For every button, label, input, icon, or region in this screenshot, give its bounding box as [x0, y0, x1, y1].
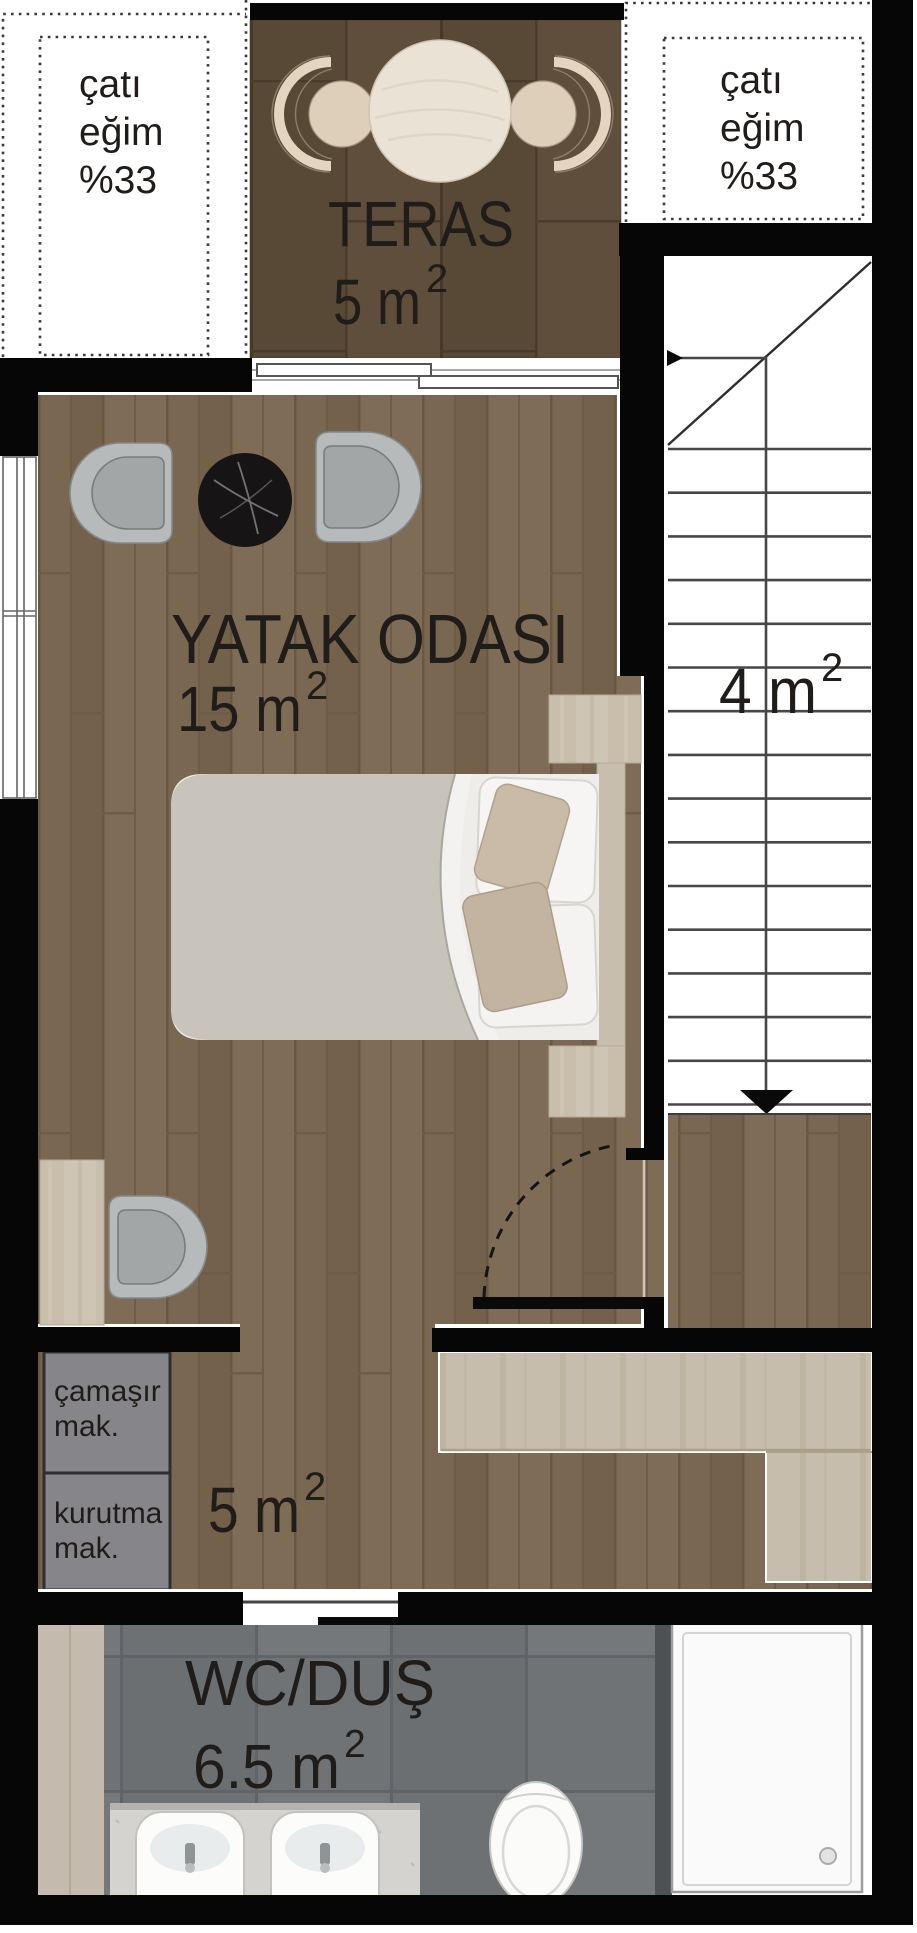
svg-text:15 m: 15 m: [177, 673, 302, 745]
svg-text:5 m: 5 m: [333, 266, 421, 338]
svg-text:çatı: çatı: [720, 59, 783, 102]
svg-text:eğim: eğim: [79, 111, 164, 154]
svg-text:kurutma: kurutma: [54, 1497, 163, 1530]
svg-text:%33: %33: [79, 159, 157, 202]
svg-text:mak.: mak.: [54, 1410, 119, 1443]
svg-text:YATAK ODASI: YATAK ODASI: [171, 600, 569, 678]
svg-text:5 m: 5 m: [208, 1474, 300, 1546]
svg-text:2: 2: [304, 1465, 326, 1509]
svg-text:2: 2: [821, 646, 843, 690]
svg-text:eğim: eğim: [720, 107, 805, 150]
svg-text:6.5 m: 6.5 m: [193, 1733, 340, 1802]
svg-text:mak.: mak.: [54, 1532, 119, 1565]
svg-text:çamaşır: çamaşır: [54, 1375, 161, 1408]
svg-text:%33: %33: [720, 155, 798, 198]
svg-text:WC/DUŞ: WC/DUŞ: [185, 1647, 435, 1719]
svg-text:2: 2: [344, 1723, 366, 1766]
svg-text:4 m: 4 m: [719, 655, 817, 727]
svg-text:2: 2: [426, 257, 448, 301]
svg-text:TERAS: TERAS: [328, 188, 514, 260]
svg-text:2: 2: [306, 664, 328, 708]
svg-text:çatı: çatı: [79, 63, 142, 106]
